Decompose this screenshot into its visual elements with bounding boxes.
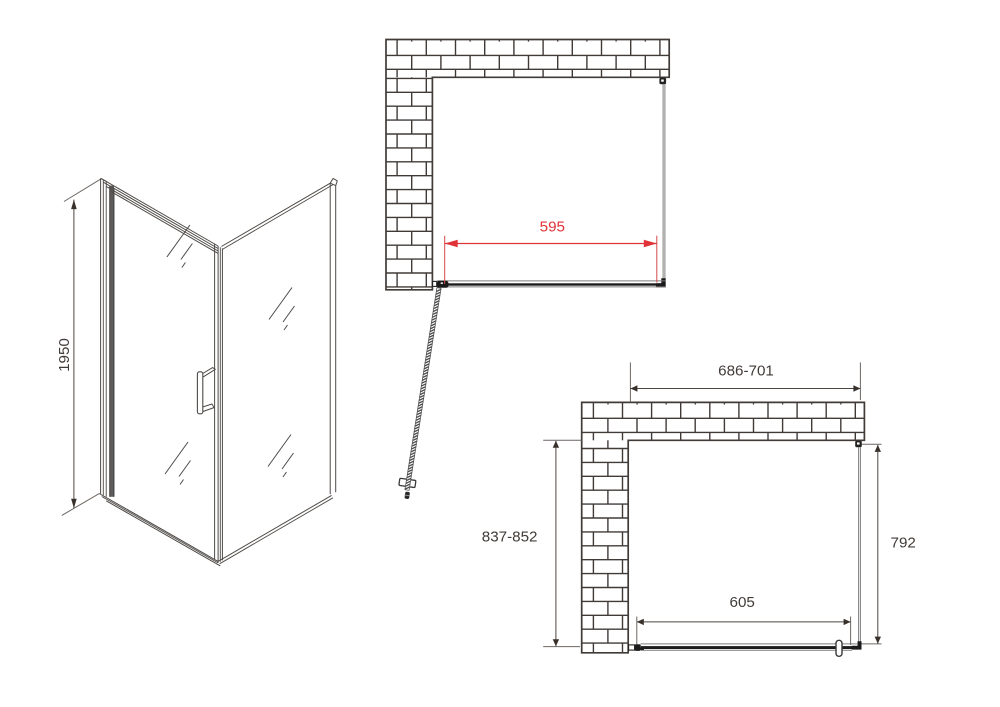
svg-text:686-701: 686-701 <box>718 362 774 379</box>
svg-text:837-852: 837-852 <box>482 529 538 546</box>
svg-text:792: 792 <box>891 534 916 551</box>
svg-text:1950: 1950 <box>56 338 73 372</box>
svg-text:595: 595 <box>540 219 565 236</box>
svg-text:605: 605 <box>730 594 755 611</box>
